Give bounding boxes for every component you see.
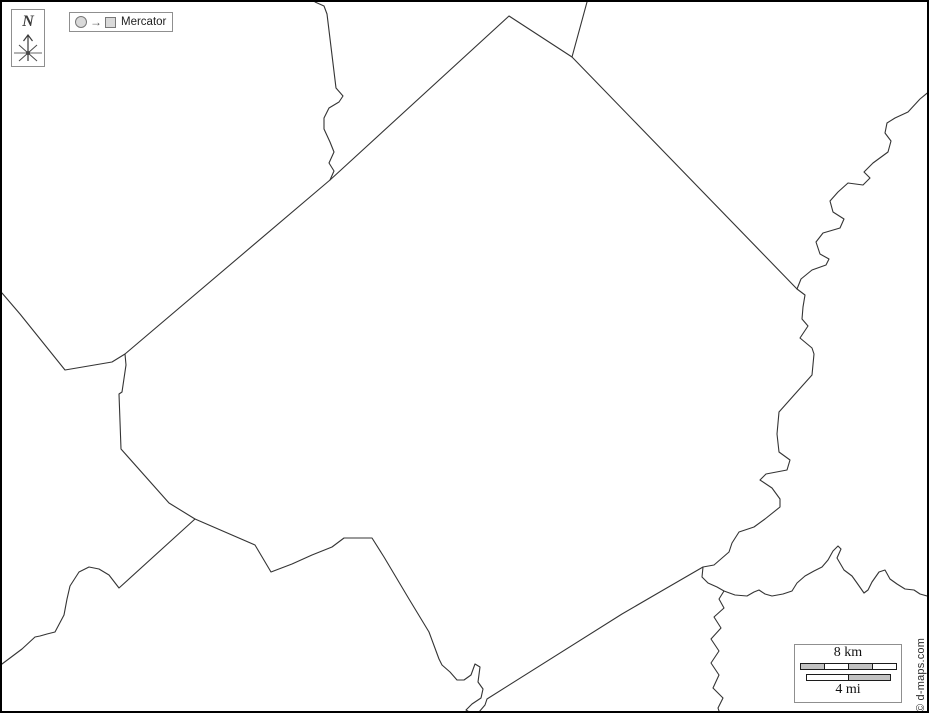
scale-segment: [801, 664, 825, 669]
county-outline: [119, 16, 814, 711]
river-lower: [702, 567, 724, 711]
scale-segment: [873, 664, 896, 669]
scale-km-bar: [800, 663, 897, 670]
flat-map-square-icon: [105, 17, 116, 28]
scale-mi-bar: [806, 674, 891, 681]
copyright-credit: © d-maps.com: [915, 638, 927, 712]
map-page: N → Mercator 8 km 4 mi © d-maps.com: [0, 0, 929, 713]
boundary-west-neighbor: [2, 293, 125, 370]
boundary-northeast-neighbor: [572, 2, 587, 57]
scale-segment: [807, 675, 849, 680]
scale-segment: [849, 664, 873, 669]
scale-bar: 8 km 4 mi: [794, 644, 902, 703]
map-canvas: [2, 2, 927, 711]
projection-name-label: Mercator: [119, 16, 166, 28]
river-tributary-east: [724, 546, 927, 596]
boundary-southwest-neighbor: [2, 519, 195, 664]
north-arrow-icon: [12, 32, 44, 65]
river-upper: [797, 90, 927, 289]
scale-mi-label: 4 mi: [795, 682, 901, 698]
arrow-right-icon: →: [90, 16, 102, 28]
scale-segment: [825, 664, 849, 669]
boundary-north-neighbor: [315, 2, 343, 180]
scale-segment: [849, 675, 890, 680]
scale-km-label: 8 km: [795, 645, 901, 661]
globe-circle-icon: [75, 16, 87, 28]
projection-selector-button[interactable]: → Mercator: [69, 12, 173, 32]
compass: N: [11, 9, 45, 67]
compass-north-label: N: [12, 12, 44, 32]
